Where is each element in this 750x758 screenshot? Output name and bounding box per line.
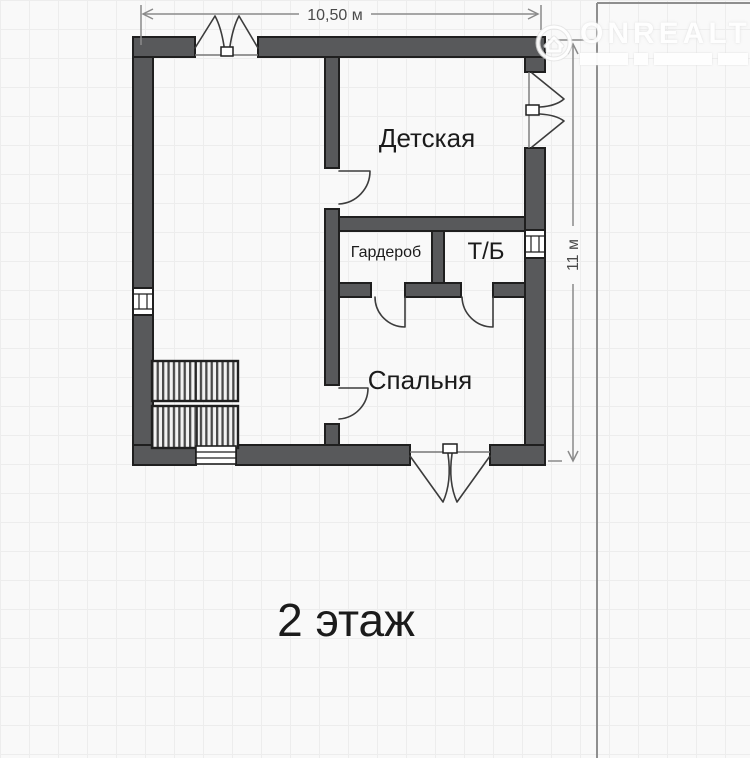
floor-plan-image: 10,50 м 11 м Детская Гардероб Т/Б Спальн…	[0, 0, 750, 758]
watermark-brand-text: ONREALT	[580, 19, 750, 49]
closet-bottom-wall-left	[339, 283, 371, 297]
watermark-subtext-block	[634, 53, 648, 65]
corridor-wall-lower	[325, 424, 339, 445]
wall-left-upper	[133, 57, 153, 288]
staircase	[152, 361, 238, 464]
door-wardrobe	[375, 297, 405, 327]
door-bedroom	[339, 388, 368, 419]
wall-bottom-mid	[236, 445, 410, 465]
right-french-window	[526, 72, 564, 148]
floor-plan-drawing: 10,50 м 11 м Детская Гардероб Т/Б Спальн…	[0, 0, 750, 758]
wall-top-right	[258, 37, 545, 57]
stair-flight-lower	[152, 406, 238, 448]
corridor-wall-upper	[325, 57, 339, 168]
wall-right-lower	[525, 258, 545, 445]
onrealt-house-icon	[534, 19, 574, 67]
corridor-wall-mid	[325, 209, 339, 385]
bottom-balcony-door	[410, 444, 490, 502]
height-dimension-label: 11 м	[565, 239, 582, 271]
stair-landing-steps	[196, 446, 236, 464]
floor-title: 2 этаж	[277, 594, 415, 646]
wall-left-lower	[133, 315, 153, 465]
dimension-height: 11 м	[548, 40, 596, 461]
room-label-bedroom: Спальня	[368, 365, 472, 395]
door-childroom	[339, 171, 370, 204]
wall-right-mid	[525, 148, 545, 230]
watermark-subtext-block	[580, 53, 628, 65]
width-dimension-label: 10,50 м	[307, 7, 362, 24]
watermark-subtext-blocks	[580, 53, 750, 65]
closet-bottom-wall-right	[493, 283, 525, 297]
closet-bath-divider-wall	[432, 231, 444, 283]
door-bathroom	[462, 297, 493, 327]
top-double-door	[195, 16, 258, 56]
watermark-subtext-block	[654, 53, 712, 65]
wall-top-left	[133, 37, 195, 57]
watermark: ONREALT	[534, 19, 750, 67]
room-label-bathroom: Т/Б	[467, 238, 504, 265]
closet-top-wall	[339, 217, 525, 231]
watermark-subtext-block	[718, 53, 748, 65]
wall-bottom-right	[490, 445, 545, 465]
stair-flight-upper	[152, 361, 238, 401]
page-edge-line	[597, 3, 750, 758]
room-label-wardrobe: Гардероб	[351, 244, 421, 261]
window-left-wall	[133, 288, 153, 315]
room-label-childroom: Детская	[379, 123, 475, 153]
window-right-wall	[525, 230, 545, 258]
closet-bottom-wall-mid	[405, 283, 461, 297]
